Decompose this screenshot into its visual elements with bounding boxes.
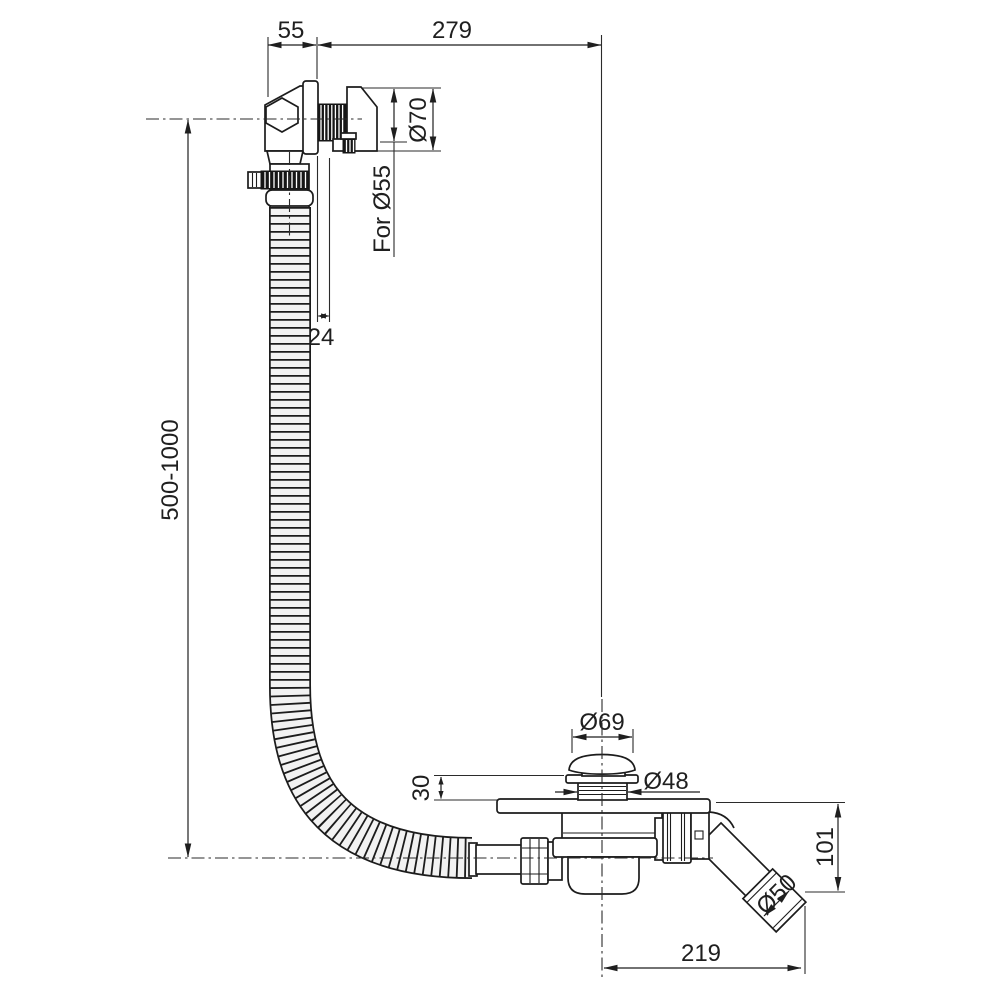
dim-outlet-reach: 219 [681, 940, 721, 967]
outlet-adapter [691, 811, 709, 859]
outlet-elbow-pipe [663, 807, 806, 932]
trap-inlet-nut [521, 838, 548, 884]
dim-overflow-flange-dia: Ø70 [405, 97, 432, 142]
dim-overflow-offset: 55 [278, 17, 305, 44]
dim-hose-length: 500-1000 [157, 419, 184, 520]
overflow-elbow-assembly [248, 81, 377, 230]
outlet-nut [663, 807, 691, 863]
bath-drain-technical-drawing: 55 279 Ø70 For Ø55 24 500-1000 Ø69 30 [0, 0, 1000, 1000]
dim-overflow-depth: 24 [308, 324, 335, 351]
drain-flange [497, 799, 710, 813]
overflow-clamp-screw [341, 133, 356, 153]
dimension-annotations: 55 279 Ø70 For Ø55 24 500-1000 Ø69 30 [157, 17, 845, 974]
dim-overflow-hole: For Ø55 [369, 165, 396, 253]
dim-drain-height: 30 [408, 775, 435, 802]
trap-inlet-pipe [476, 845, 523, 874]
dim-outlet-drop: 101 [812, 827, 839, 867]
overflow-flange [303, 81, 318, 154]
trap-mid-ring [553, 838, 657, 857]
dim-drain-thread-dia: Ø48 [643, 768, 688, 795]
dim-span-to-drain: 279 [432, 17, 472, 44]
hose-clamp [248, 171, 309, 189]
technical-drawing-sheet: 55 279 Ø70 For Ø55 24 500-1000 Ø69 30 [0, 0, 1000, 1000]
trap-cup [568, 857, 639, 894]
